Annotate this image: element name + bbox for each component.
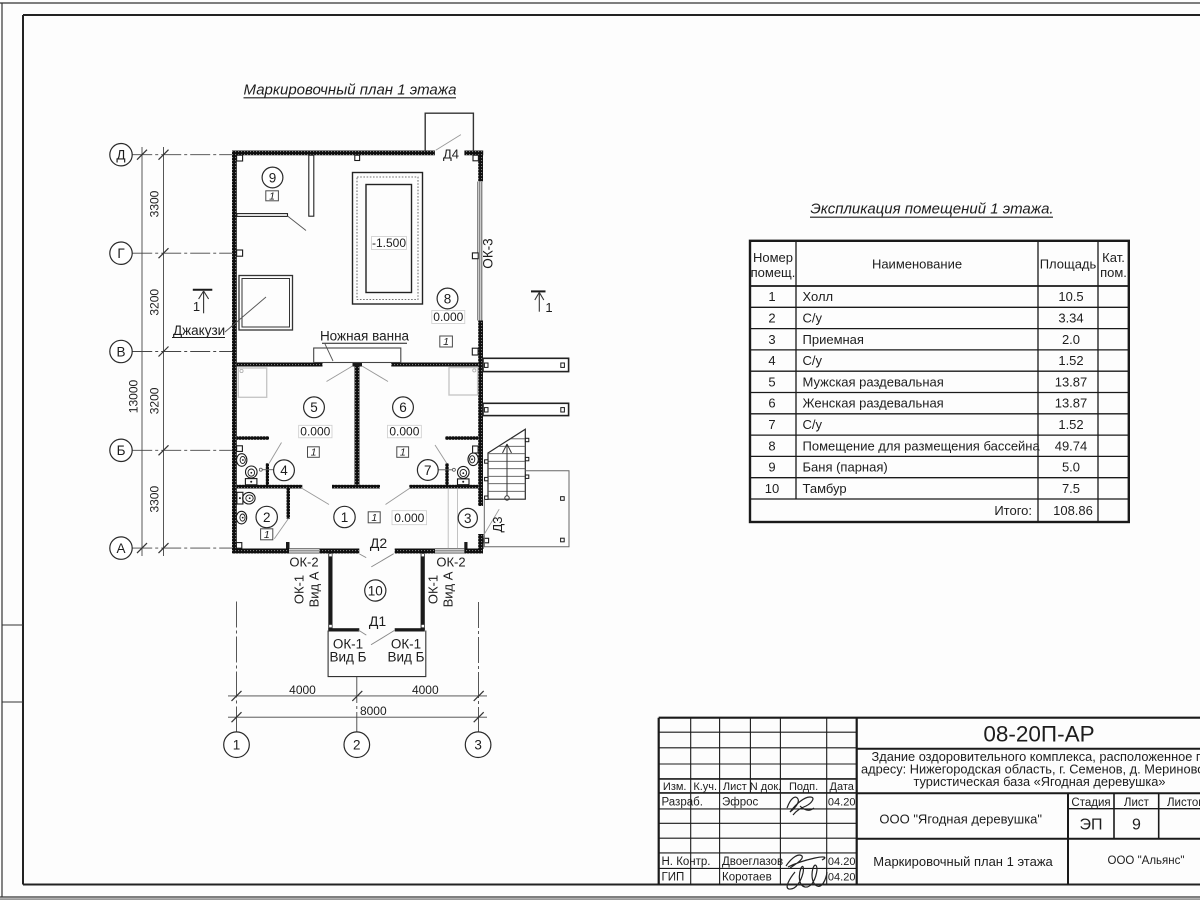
svg-text:3: 3	[464, 511, 472, 526]
svg-text:3300: 3300	[148, 190, 162, 217]
svg-text:4000: 4000	[289, 683, 316, 697]
svg-text:Маркировочный план 1 этажа: Маркировочный план 1 этажа	[873, 854, 1053, 869]
svg-text:1.52: 1.52	[1058, 417, 1083, 432]
svg-text:8: 8	[444, 291, 452, 306]
svg-text:ОК-3: ОК-3	[481, 238, 496, 268]
svg-text:Помещение для размещения бассе: Помещение для размещения бассейна	[803, 438, 1041, 453]
svg-text:3300: 3300	[148, 486, 162, 513]
svg-text:Б: Б	[117, 443, 126, 458]
svg-text:7: 7	[424, 463, 432, 478]
svg-text:ГИП: ГИП	[662, 871, 685, 883]
svg-text:6: 6	[768, 396, 775, 411]
svg-text:10: 10	[368, 583, 383, 598]
svg-text:2: 2	[263, 510, 271, 525]
svg-text:08-20П-АР: 08-20П-АР	[983, 722, 1094, 747]
svg-text:Тамбур: Тамбур	[803, 481, 847, 496]
svg-text:ООО "Альянс": ООО "Альянс"	[1108, 855, 1185, 867]
svg-text:Итого:: Итого:	[994, 503, 1032, 518]
svg-text:4000: 4000	[412, 683, 439, 697]
svg-text:1: 1	[193, 299, 200, 314]
svg-text:1: 1	[371, 512, 377, 524]
svg-text:Эфрос: Эфрос	[722, 797, 759, 809]
svg-text:Д1: Д1	[369, 613, 386, 629]
svg-text:Разраб.: Разраб.	[662, 797, 703, 809]
svg-text:2: 2	[353, 738, 361, 753]
svg-text:Баня (парная): Баня (парная)	[803, 460, 888, 475]
svg-text:1: 1	[341, 510, 349, 525]
svg-text:8000: 8000	[360, 704, 387, 718]
svg-text:Ножная ванна: Ножная ванна	[320, 329, 410, 344]
svg-text:10.5: 10.5	[1058, 289, 1083, 304]
svg-text:К.уч.: К.уч.	[693, 781, 717, 793]
svg-text:108.86: 108.86	[1053, 503, 1093, 518]
svg-text:3: 3	[474, 738, 482, 753]
svg-text:Г: Г	[117, 246, 125, 261]
svg-text:7.5: 7.5	[1062, 481, 1080, 496]
svg-text:3: 3	[768, 332, 775, 347]
svg-text:13.87: 13.87	[1055, 396, 1088, 411]
svg-text:1: 1	[233, 738, 241, 753]
svg-text:Маркировочный план 1 этажа: Маркировочный план 1 этажа	[244, 82, 457, 99]
svg-text:2: 2	[768, 311, 775, 326]
svg-text:9: 9	[269, 170, 277, 185]
svg-text:Вид А: Вид А	[441, 571, 456, 607]
svg-text:Вид Б: Вид Б	[329, 650, 366, 665]
svg-text:1: 1	[443, 336, 449, 348]
svg-text:1: 1	[311, 447, 317, 459]
svg-text:1: 1	[269, 190, 275, 202]
svg-text:9: 9	[768, 460, 775, 475]
svg-text:5: 5	[310, 400, 318, 415]
svg-text:Джакузи: Джакузи	[173, 323, 225, 338]
svg-text:3.34: 3.34	[1058, 311, 1083, 326]
svg-text:13.87: 13.87	[1055, 374, 1088, 389]
svg-text:Коротаев: Коротаев	[722, 871, 772, 883]
svg-text:9: 9	[1132, 817, 1141, 834]
svg-text:туристическая база «Ягодная де: туристическая база «Ягодная деревушка»	[914, 774, 1166, 789]
svg-text:Мужская раздевальная: Мужская раздевальная	[803, 374, 944, 389]
svg-text:Кат.: Кат.	[1102, 250, 1125, 265]
svg-text:7: 7	[768, 417, 775, 432]
svg-text:6: 6	[399, 400, 407, 415]
svg-text:Площадь: Площадь	[1040, 257, 1097, 272]
svg-text:13000: 13000	[127, 379, 141, 413]
svg-text:Приемная: Приемная	[803, 332, 864, 347]
svg-text:Подп.: Подп.	[789, 781, 818, 793]
svg-text:0.000: 0.000	[300, 424, 330, 438]
svg-text:4: 4	[280, 463, 288, 478]
svg-text:ОК-2: ОК-2	[436, 555, 465, 570]
svg-text:1: 1	[400, 447, 406, 459]
svg-text:Д: Д	[116, 148, 125, 163]
svg-text:Стадия: Стадия	[1071, 797, 1110, 809]
svg-text:Изм.: Изм.	[663, 781, 687, 793]
svg-text:Д3: Д3	[490, 516, 505, 532]
svg-text:Н. Контр.: Н. Контр.	[662, 856, 711, 868]
svg-text:1.52: 1.52	[1058, 353, 1083, 368]
svg-text:5.0: 5.0	[1062, 460, 1080, 475]
svg-text:0.000: 0.000	[433, 310, 463, 324]
svg-text:Дата: Дата	[830, 781, 855, 793]
svg-text:2.0: 2.0	[1062, 332, 1080, 347]
svg-text:10: 10	[765, 481, 779, 496]
svg-text:Вид А: Вид А	[307, 571, 322, 607]
svg-text:Лист: Лист	[723, 781, 747, 793]
svg-text:В: В	[116, 344, 125, 359]
svg-text:0.000: 0.000	[389, 424, 419, 438]
svg-text:04.20: 04.20	[828, 871, 856, 883]
svg-text:04.20: 04.20	[828, 797, 856, 809]
svg-text:Д2: Д2	[370, 535, 387, 551]
svg-text:Д4: Д4	[443, 147, 459, 162]
svg-text:N док.: N док.	[750, 781, 781, 793]
svg-text:04.20: 04.20	[828, 856, 856, 868]
svg-text:С/у: С/у	[803, 353, 823, 368]
svg-text:8: 8	[768, 438, 775, 453]
svg-text:Двоеглазов: Двоеглазов	[722, 856, 783, 868]
svg-text:пом.: пом.	[1100, 265, 1127, 280]
svg-text:3200: 3200	[148, 289, 162, 316]
svg-text:3200: 3200	[148, 387, 162, 414]
svg-text:1: 1	[264, 529, 270, 541]
svg-text:Холл: Холл	[803, 289, 834, 304]
svg-text:ОК-2: ОК-2	[289, 555, 318, 570]
svg-text:ЭП: ЭП	[1080, 817, 1103, 834]
svg-text:ОК-1: ОК-1	[426, 575, 441, 604]
svg-text:А: А	[116, 541, 125, 556]
svg-text:4: 4	[768, 353, 775, 368]
svg-text:Наименование: Наименование	[872, 257, 962, 272]
svg-text:Экспликация помещений 1 этажа.: Экспликация помещений 1 этажа.	[810, 201, 1053, 218]
svg-text:49.74: 49.74	[1055, 438, 1088, 453]
svg-text:1: 1	[768, 289, 775, 304]
svg-text:5: 5	[768, 374, 775, 389]
svg-text:1: 1	[545, 300, 552, 315]
svg-text:ООО "Ягодная деревушка": ООО "Ягодная деревушка"	[879, 812, 1042, 827]
svg-text:Номер: Номер	[753, 250, 793, 265]
svg-text:-1.500: -1.500	[372, 236, 406, 250]
svg-text:С/у: С/у	[803, 311, 823, 326]
svg-text:Листов: Листов	[1167, 797, 1200, 809]
svg-text:С/у: С/у	[803, 417, 823, 432]
svg-text:0.000: 0.000	[394, 511, 424, 525]
svg-text:помещ.: помещ.	[751, 265, 796, 280]
svg-text:Женская раздевальная: Женская раздевальная	[803, 396, 944, 411]
svg-text:Лист: Лист	[1124, 797, 1150, 809]
svg-text:Вид Б: Вид Б	[387, 650, 424, 665]
svg-text:ОК-1: ОК-1	[292, 575, 307, 604]
